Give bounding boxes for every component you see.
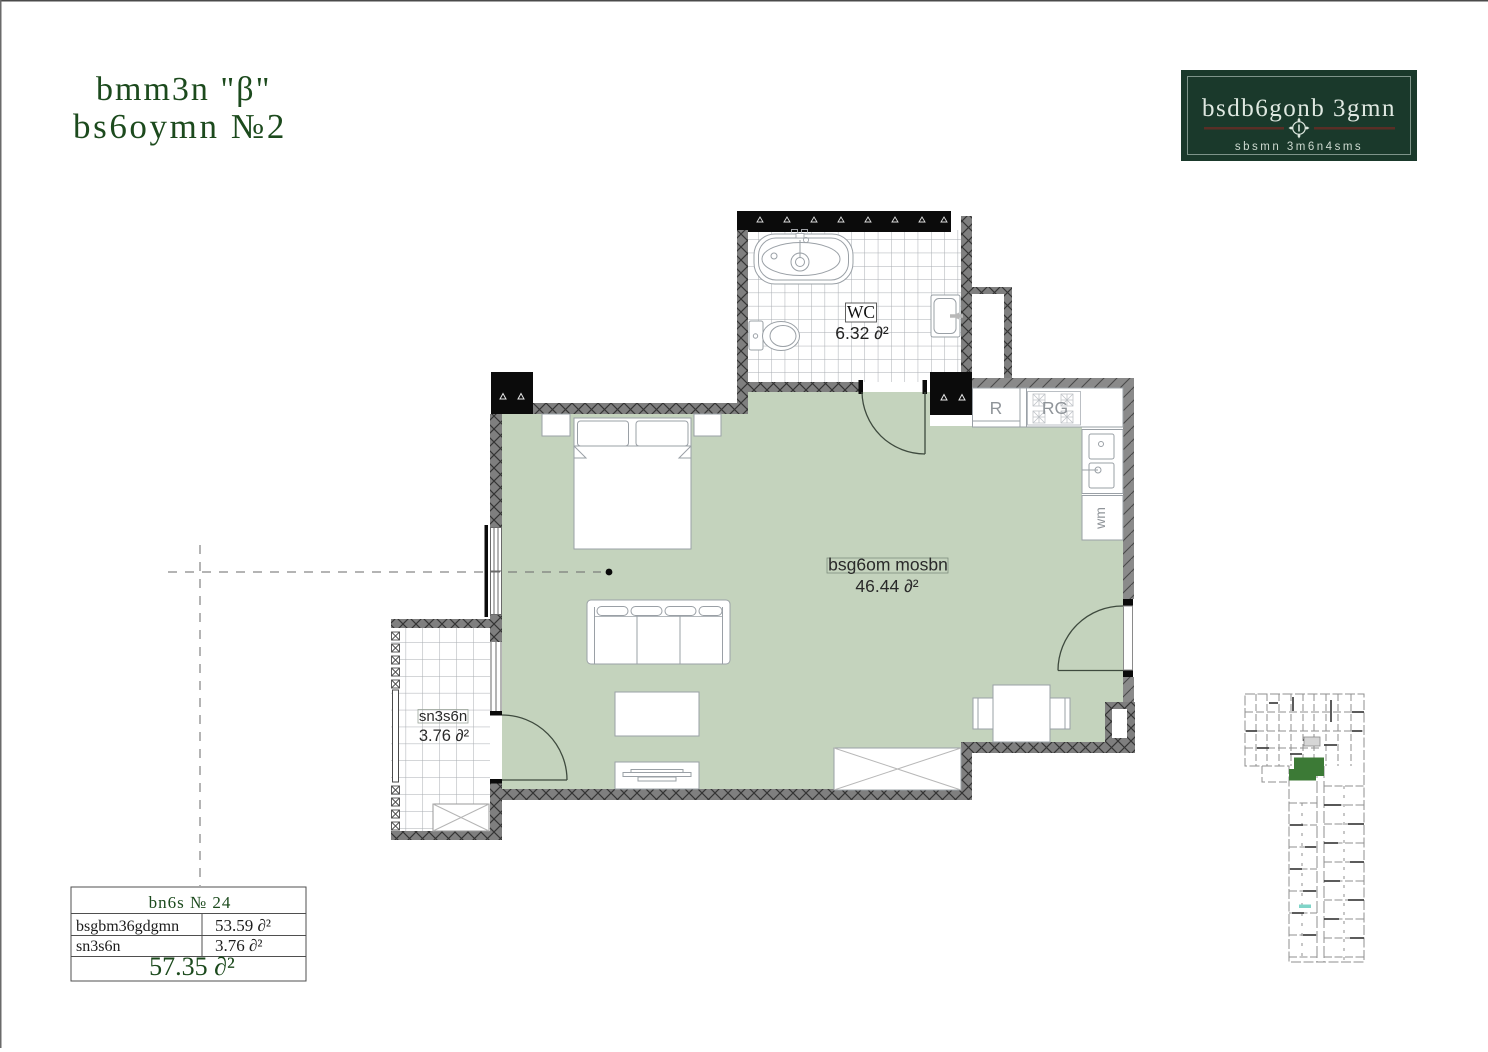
svg-text:R: R [990, 398, 1003, 418]
svg-text:bmm3n "β": bmm3n "β" [96, 71, 271, 108]
svg-text:46.44 ∂²: 46.44 ∂² [855, 576, 918, 596]
svg-text:bs6oymn №2: bs6oymn №2 [73, 107, 287, 146]
svg-text:57.35 ∂²: 57.35 ∂² [149, 952, 235, 981]
svg-text:53.59 ∂²: 53.59 ∂² [215, 916, 271, 935]
svg-text:wm: wm [1092, 507, 1108, 530]
svg-text:bsgbm36gdgmn: bsgbm36gdgmn [76, 918, 179, 935]
svg-text:6.32 ∂²: 6.32 ∂² [835, 323, 889, 343]
svg-text:RG: RG [1042, 398, 1068, 418]
svg-text:bn6s № 24: bn6s № 24 [149, 893, 232, 912]
svg-text:bsg6om mosbn: bsg6om mosbn [828, 555, 948, 575]
svg-text:sn3s6n: sn3s6n [419, 708, 467, 725]
svg-text:WC: WC [847, 302, 875, 322]
svg-text:sn3s6n: sn3s6n [76, 938, 120, 955]
svg-text:sbsmn 3m6n4sms: sbsmn 3m6n4sms [1235, 141, 1363, 153]
svg-text:3.76 ∂²: 3.76 ∂² [419, 727, 470, 745]
